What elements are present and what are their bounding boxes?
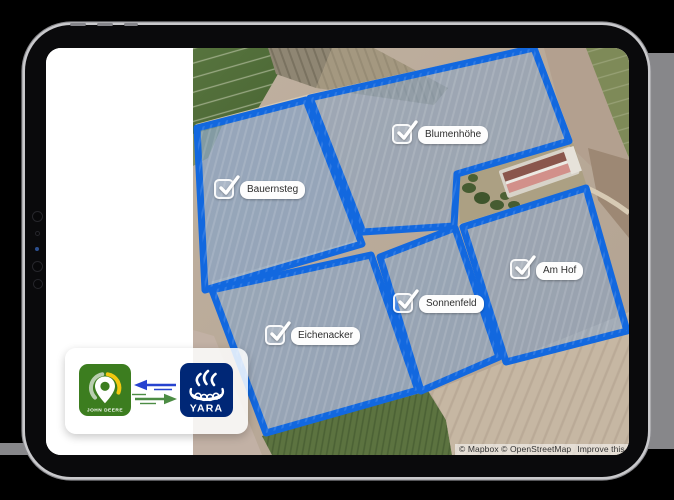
map-attribution: © Mapbox © OpenStreetMapImprove this map	[455, 444, 629, 455]
rear-camera3-icon	[33, 279, 43, 289]
checkmark-icon	[216, 175, 240, 199]
improve-map-link[interactable]: Improve this map	[577, 444, 629, 454]
field-checkbox-eichenacker[interactable]	[265, 325, 285, 345]
field-checkbox-blumenhoehe[interactable]	[392, 124, 412, 144]
pin-hole	[100, 382, 109, 391]
checkmark-icon	[267, 321, 291, 345]
arrow-right-head	[164, 394, 177, 404]
tablet-screen: BauernstegBlumenhöheEichenackerSonnenfel…	[46, 48, 629, 455]
field-checkbox-sonnenfeld[interactable]	[393, 293, 413, 313]
yara-app-icon: YARA	[180, 363, 233, 417]
sync-overlay-card: JOHN DEERE	[65, 348, 248, 434]
rear-camera-icon	[32, 211, 43, 222]
field-label-bauernsteg: Bauernsteg	[240, 181, 305, 199]
john-deere-app-icon: JOHN DEERE	[79, 364, 131, 416]
field-label-eichenacker: Eichenacker	[291, 327, 360, 345]
attribution-copyright: © Mapbox © OpenStreetMap	[459, 444, 571, 454]
field-label-sonnenfeld: Sonnenfeld	[419, 295, 484, 313]
microphone-dot-icon	[35, 231, 40, 236]
rear-camera2-icon	[32, 261, 43, 272]
volume-up-button[interactable]	[70, 23, 86, 26]
field-labels-layer: BauernstegBlumenhöheEichenackerSonnenfel…	[193, 48, 629, 455]
checkmark-icon	[394, 120, 418, 144]
backdrop-gray-bottom-left	[0, 443, 30, 455]
satellite-map[interactable]: BauernstegBlumenhöheEichenackerSonnenfel…	[193, 48, 629, 455]
volume-down-button[interactable]	[97, 23, 113, 26]
checkmark-icon	[395, 289, 419, 313]
field-label-blumenhoehe: Blumenhöhe	[418, 126, 488, 144]
camera-lens-glint-icon	[35, 247, 39, 251]
power-button[interactable]	[124, 23, 138, 26]
sync-arrows-icon	[131, 375, 180, 409]
backdrop-gray-right	[646, 53, 674, 449]
field-label-amhof: Am Hof	[536, 262, 583, 280]
field-checkbox-amhof[interactable]	[510, 259, 530, 279]
field-checkbox-bauernsteg[interactable]	[214, 179, 234, 199]
tablet-frame: BauernstegBlumenhöheEichenackerSonnenfel…	[25, 25, 648, 477]
yara-label: YARA	[190, 403, 224, 415]
arrow-left-head	[134, 380, 147, 390]
john-deere-label: JOHN DEERE	[87, 408, 123, 414]
checkmark-icon	[512, 255, 536, 279]
